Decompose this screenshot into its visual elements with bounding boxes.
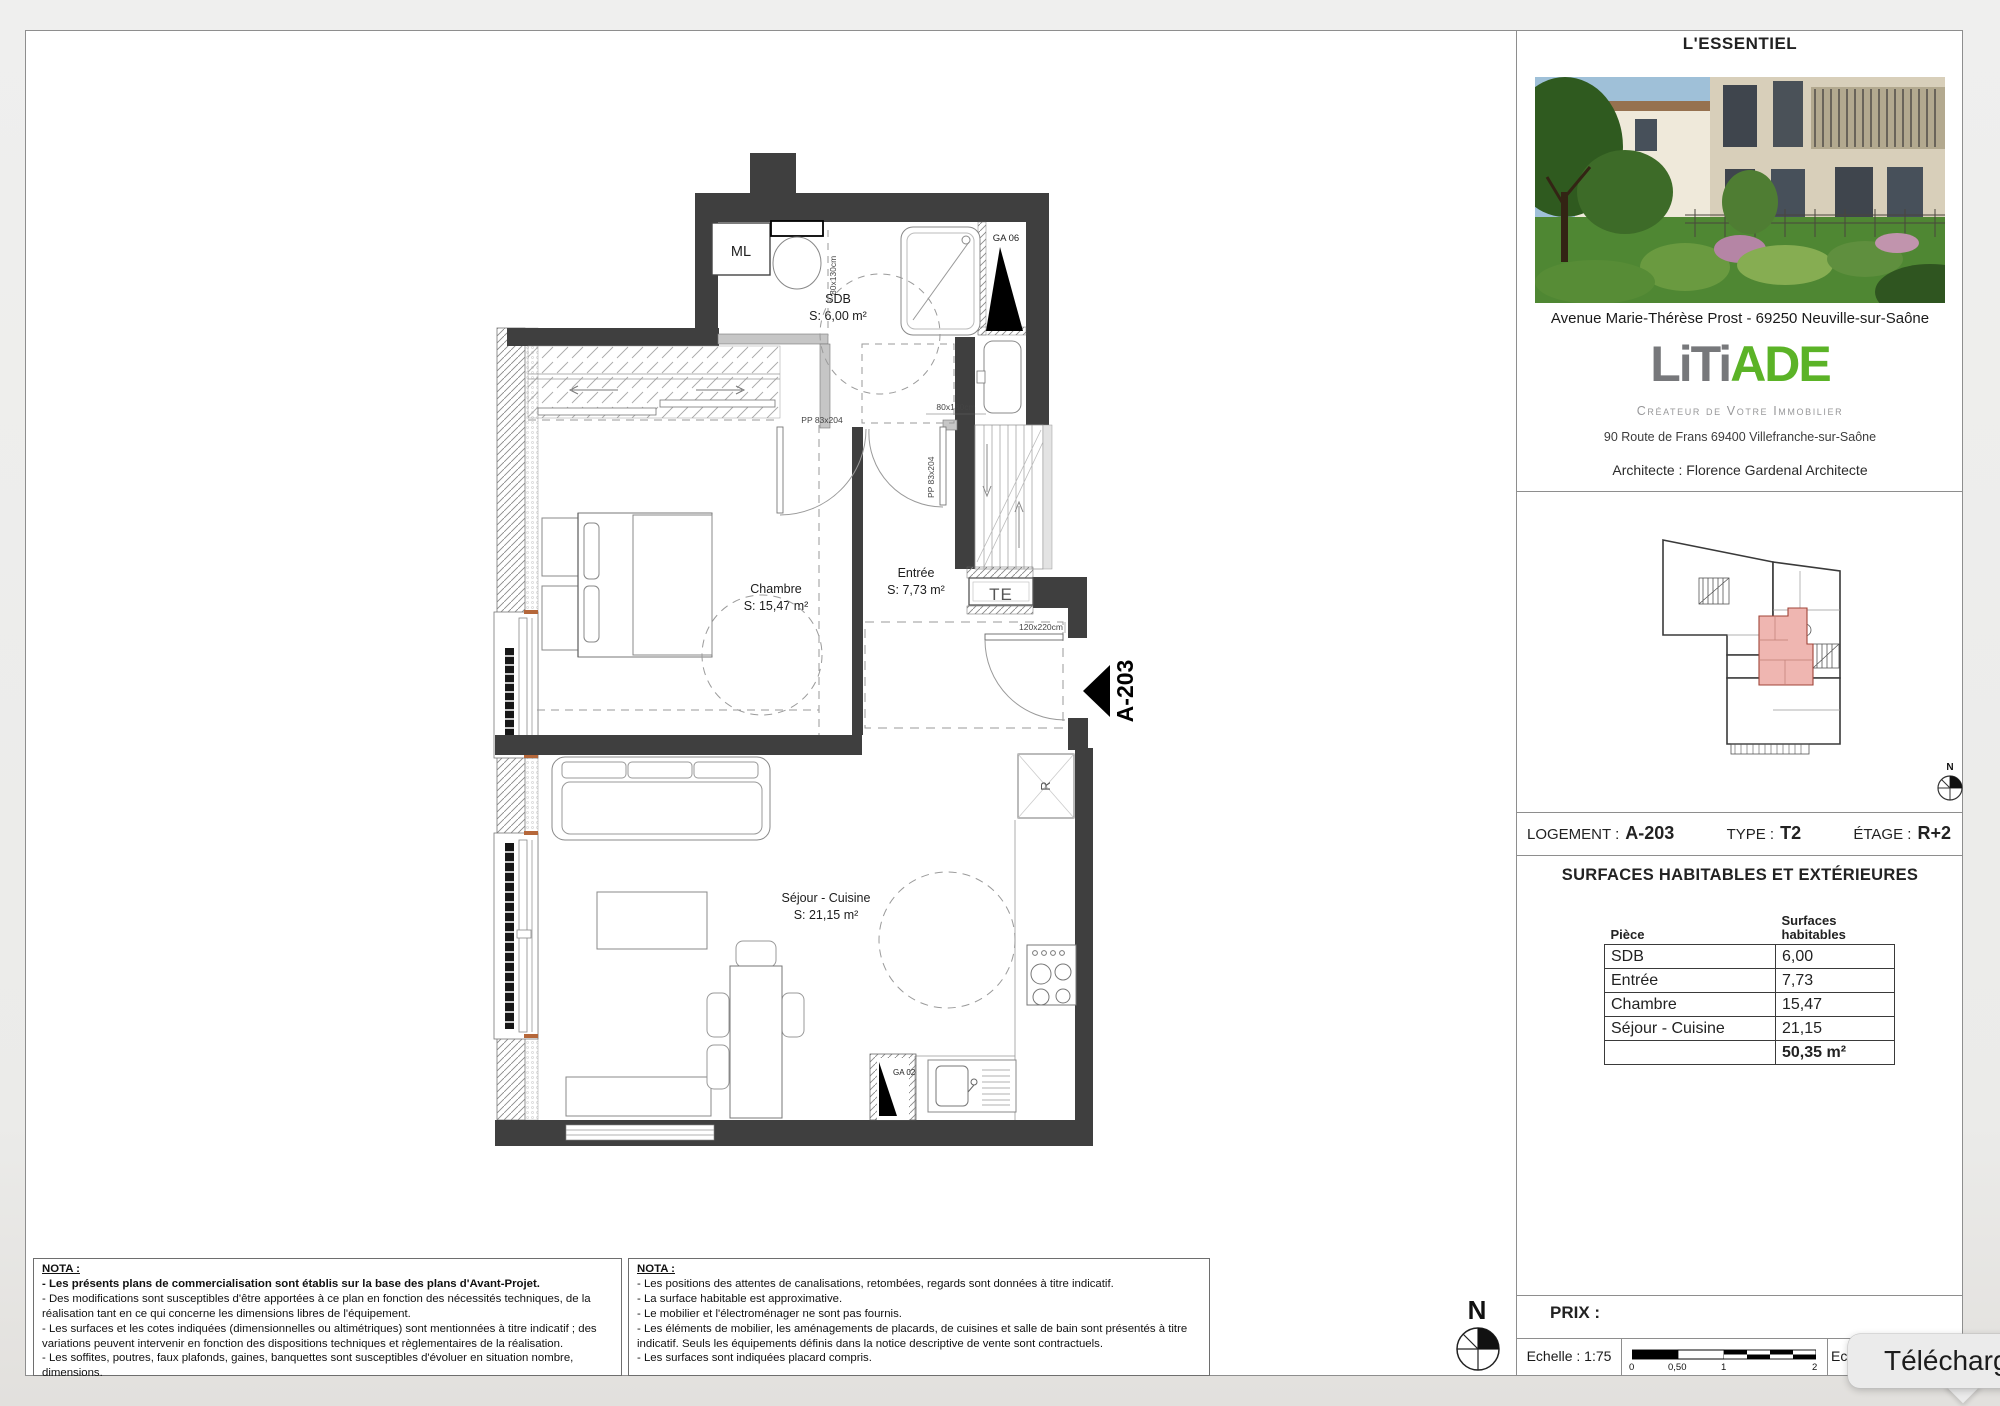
type-label: TYPE :T2: [1727, 823, 1802, 844]
svg-text:Séjour - Cuisine: Séjour - Cuisine: [782, 891, 871, 905]
logement-value: A-203: [1625, 823, 1674, 843]
sejour-label: Séjour - Cuisine S: 21,15 m²: [782, 891, 871, 922]
table-row: Séjour - Cuisine21,15: [1605, 1017, 1895, 1041]
dim-80x130-vertical: 80x130cm: [828, 256, 838, 295]
total-surface: 50,35 m²: [1776, 1041, 1895, 1065]
table-row: Chambre15,47: [1605, 993, 1895, 1017]
sidebar-title: L'ESSENTIEL: [1517, 34, 1963, 54]
unit-marker: A-203: [1083, 660, 1138, 723]
photo-caption: Avenue Marie-Thérèse Prost - 69250 Neuvi…: [1517, 310, 1963, 327]
etage-value: R+2: [1917, 823, 1951, 843]
chambre-label: Chambre S: 15,47 m²: [744, 582, 809, 613]
logo-gray-part: LiTi: [1650, 336, 1730, 392]
logement-row: LOGEMENT :A-203 TYPE :T2 ÉTAGE :R+2: [1517, 812, 1963, 855]
svg-text:N: N: [1946, 762, 1953, 773]
nota-left-title: NOTA :: [42, 1262, 613, 1277]
divider: [1516, 1295, 1963, 1296]
type-value: T2: [1780, 823, 1801, 843]
nightstand: [542, 518, 578, 576]
divider: [1827, 1338, 1828, 1376]
divider: [1516, 491, 1963, 492]
building-photo: [1535, 77, 1945, 303]
svg-text:S: 21,15 m²: S: 21,15 m²: [794, 908, 859, 922]
duct-ga06: GA 06: [978, 222, 1026, 335]
floor-plan: GA 06 ML 80x130cm 80x130cm SDB S:: [480, 140, 1180, 1160]
unit-marker-label: A-203: [1112, 660, 1138, 723]
pillow: [584, 523, 599, 579]
svg-text:SDB: SDB: [825, 292, 851, 306]
divider: [1621, 1338, 1622, 1376]
page: GA 06 ML 80x130cm 80x130cm SDB S:: [0, 0, 2000, 1406]
logement-label: LOGEMENT :A-203: [1527, 823, 1674, 844]
svg-text:S: 7,73 m²: S: 7,73 m²: [887, 583, 945, 597]
key-plan-unit-highlight: [1759, 608, 1813, 685]
nota-line: - Les soffites, poutres, faux plafonds, …: [42, 1351, 613, 1381]
table-row: SDB6,00: [1605, 945, 1895, 969]
divider: [1516, 855, 1963, 856]
duct-ga02: GA 02: [870, 1054, 916, 1120]
refrigerator-label: R: [1038, 781, 1053, 790]
ga06-label: GA 06: [993, 233, 1019, 244]
sidebar-divider: [1516, 30, 1517, 1376]
scale-tick-1: 1: [1721, 1362, 1726, 1373]
table-total-row: 50,35 m²: [1605, 1041, 1895, 1065]
dining-set: [707, 941, 804, 1118]
window-sejour: [494, 831, 538, 1039]
te-box: TE: [967, 567, 1033, 614]
scale-tick-2: 2: [1812, 1362, 1817, 1373]
door-sdb: PP 83x204: [869, 427, 946, 507]
kitchen-sink: [928, 1060, 1016, 1112]
nota-line: - Les positions des attentes de canalisa…: [637, 1277, 1201, 1292]
col-piece: Pièce: [1605, 914, 1776, 945]
north-compass: N: [1450, 1293, 1530, 1378]
scale-tick-050: 0,50: [1668, 1362, 1687, 1373]
prix-label: PRIX :: [1550, 1303, 1600, 1323]
logo-tagline: Créateur de Votre Immobilier: [1517, 404, 1963, 418]
pillow: [584, 586, 599, 642]
nota-right: NOTA : - Les positions des attentes de c…: [628, 1258, 1210, 1376]
scale-bar: [1632, 1348, 1816, 1362]
bed-group: [542, 513, 712, 657]
bathtub: [977, 341, 1021, 413]
svg-text:Entrée: Entrée: [898, 566, 935, 580]
door-sdb-dim: PP 83x204: [926, 456, 936, 498]
etage-label: ÉTAGE :R+2: [1853, 823, 1951, 844]
surfaces-title: SURFACES HABITABLES ET EXTÉRIEURES: [1517, 866, 1963, 885]
download-tooltip-text: Téléchargem: [1884, 1345, 2000, 1377]
nota-line: - Les surfaces et les cotes indiquées (d…: [42, 1322, 613, 1352]
svg-text:S: 6,00 m²: S: 6,00 m²: [809, 309, 867, 323]
cooktop: [1027, 945, 1076, 1005]
door-chambre-dim: PP 83x204: [801, 415, 843, 425]
surfaces-table: Pièce Surfaceshabitables SDB6,00 Entrée7…: [1604, 914, 1895, 1065]
nota-line: - Le mobilier et l'électroménager ne son…: [637, 1307, 1201, 1322]
col-surfaces: Surfaceshabitables: [1776, 914, 1895, 945]
sejour-bottom-window: [566, 1125, 714, 1140]
table-row: Entrée7,73: [1605, 969, 1895, 993]
logo-green-part: ADE: [1730, 336, 1830, 392]
nota-left: NOTA : - Les présents plans de commercia…: [33, 1258, 622, 1376]
tv-cabinet: [566, 1077, 711, 1116]
sofa: [552, 757, 770, 840]
nota-line: - Les éléments de mobilier, les aménagem…: [637, 1322, 1201, 1352]
key-plan: [1655, 520, 1875, 760]
dim-80x130-horizontal: 80x130cm: [936, 402, 975, 412]
entree-label: Entrée S: 7,73 m²: [887, 566, 945, 597]
stairwell: [975, 425, 1052, 569]
toilet-bowl: [773, 237, 821, 289]
svg-text:Chambre: Chambre: [750, 582, 801, 596]
refrigerator: R: [1018, 754, 1074, 818]
table-header: Pièce Surfaceshabitables: [1605, 914, 1895, 945]
nota-line: - Des modifications sont susceptibles d'…: [42, 1292, 613, 1322]
coffee-table: [597, 892, 707, 949]
north-compass-small: N: [1928, 758, 1972, 808]
download-tooltip: Téléchargem: [1848, 1334, 2000, 1388]
wardrobe: [528, 346, 780, 420]
scale-text: Echelle : 1:75: [1517, 1348, 1621, 1364]
nota-right-title: NOTA :: [637, 1262, 1201, 1277]
washing-machine-label: ML: [731, 244, 751, 260]
litade-logo: LiTiADE: [1517, 336, 1963, 392]
blanket: [633, 515, 712, 655]
svg-text:N: N: [1468, 1295, 1487, 1325]
nota-line: - Les surfaces sont indiquées placard co…: [637, 1351, 1201, 1366]
nota-line: - Les présents plans de commercialisatio…: [42, 1277, 613, 1292]
shower: [901, 227, 980, 335]
sdb-label: SDB S: 6,00 m²: [809, 292, 867, 323]
toilet-tank: [771, 221, 823, 236]
scale-text-partial: Ec: [1831, 1348, 1847, 1364]
entry-door: 120x220cm: [985, 622, 1065, 720]
entry-door-dim: 120x220cm: [1019, 622, 1063, 632]
architect-line: Architecte : Florence Gardenal Architect…: [1517, 462, 1963, 478]
logo-address: 90 Route de Frans 69400 Villefranche-sur…: [1517, 430, 1963, 444]
nota-line: - La surface habitable est approximative…: [637, 1292, 1201, 1307]
ga02-label: GA 02: [893, 1068, 916, 1077]
scale-tick-0: 0: [1629, 1362, 1634, 1373]
te-label: TE: [989, 585, 1013, 604]
svg-text:S: 15,47 m²: S: 15,47 m²: [744, 599, 809, 613]
sejour-clearance: [879, 872, 1015, 1008]
nightstand: [542, 586, 578, 650]
